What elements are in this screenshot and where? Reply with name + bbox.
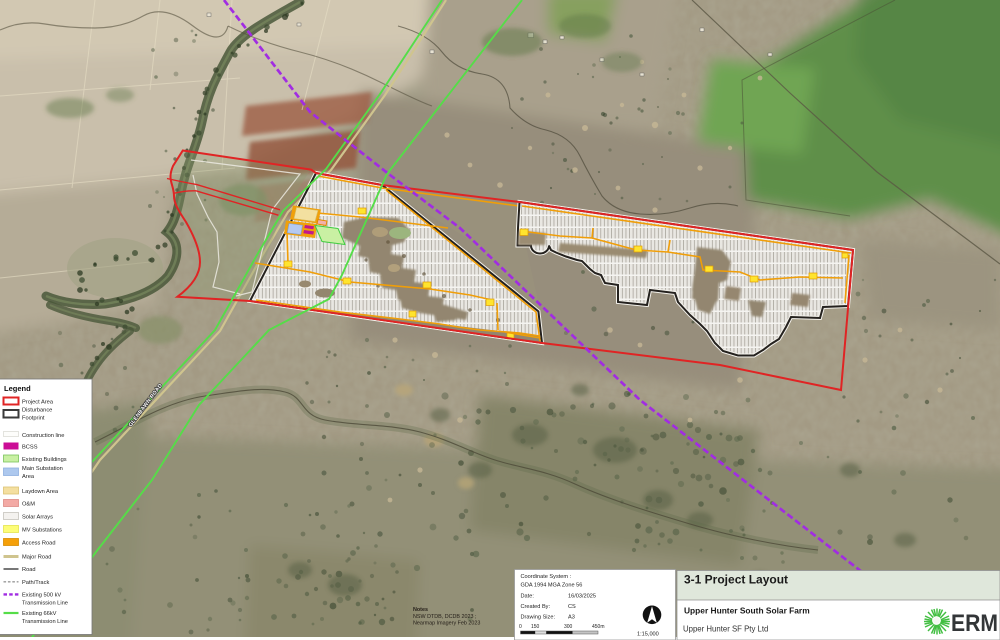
svg-text:Project Area: Project Area [22,400,54,406]
svg-text:Upper Hunter SF Pty Ltd: Upper Hunter SF Pty Ltd [683,625,768,634]
svg-text:Transmission Line: Transmission Line [22,619,68,625]
svg-text:O&M: O&M [22,502,35,508]
svg-text:Coordinate System :: Coordinate System : [521,574,572,580]
svg-text:450m: 450m [592,624,605,630]
svg-text:CS: CS [568,604,576,610]
svg-text:BCSS: BCSS [22,445,38,451]
svg-text:Upper Hunter South Solar Farm: Upper Hunter South Solar Farm [684,606,810,616]
svg-text:Existing Buildings: Existing Buildings [22,457,67,463]
svg-text:Existing 500 kV: Existing 500 kV [22,593,61,599]
svg-text:Major Road: Major Road [22,555,51,561]
svg-text:Main Substation: Main Substation [22,466,63,472]
svg-text:Disturbance: Disturbance [22,408,52,414]
svg-text:Date:: Date: [521,594,535,600]
svg-text:150: 150 [531,624,540,630]
svg-text:Nearmap Imagery Feb 2023: Nearmap Imagery Feb 2023 [413,621,480,627]
svg-text:Notes: Notes [413,607,428,613]
svg-text:Transmission Line: Transmission Line [22,601,68,607]
svg-text:1:15,000: 1:15,000 [637,632,659,638]
svg-text:Existing 66kV: Existing 66kV [22,611,57,617]
svg-text:ERM: ERM [951,610,998,637]
svg-text:Road: Road [22,567,36,573]
svg-text:Drawing Size:: Drawing Size: [521,615,556,621]
svg-text:16/03/2025: 16/03/2025 [568,594,596,600]
svg-text:Construction line: Construction line [22,433,64,439]
svg-text:Access Road: Access Road [22,541,56,547]
svg-text:Solar Arrays: Solar Arrays [22,515,53,521]
svg-text:Legend: Legend [4,384,31,393]
svg-text:300: 300 [564,624,573,630]
svg-text:Path/Track: Path/Track [22,580,49,586]
svg-text:3-1 Project Layout: 3-1 Project Layout [684,573,788,587]
svg-text:Footprint: Footprint [22,416,45,422]
svg-text:NSW DTDB, DCDB 2023 ;: NSW DTDB, DCDB 2023 ; [413,614,477,620]
svg-text:MV Substations: MV Substations [22,528,62,534]
svg-text:Area: Area [22,474,35,480]
svg-text:Created By:: Created By: [521,604,551,610]
svg-text:0: 0 [519,624,522,630]
svg-text:A3: A3 [568,615,575,621]
svg-text:Laydown Area: Laydown Area [22,489,59,495]
svg-text:GDA 1994 MGA Zone 56: GDA 1994 MGA Zone 56 [521,583,583,589]
